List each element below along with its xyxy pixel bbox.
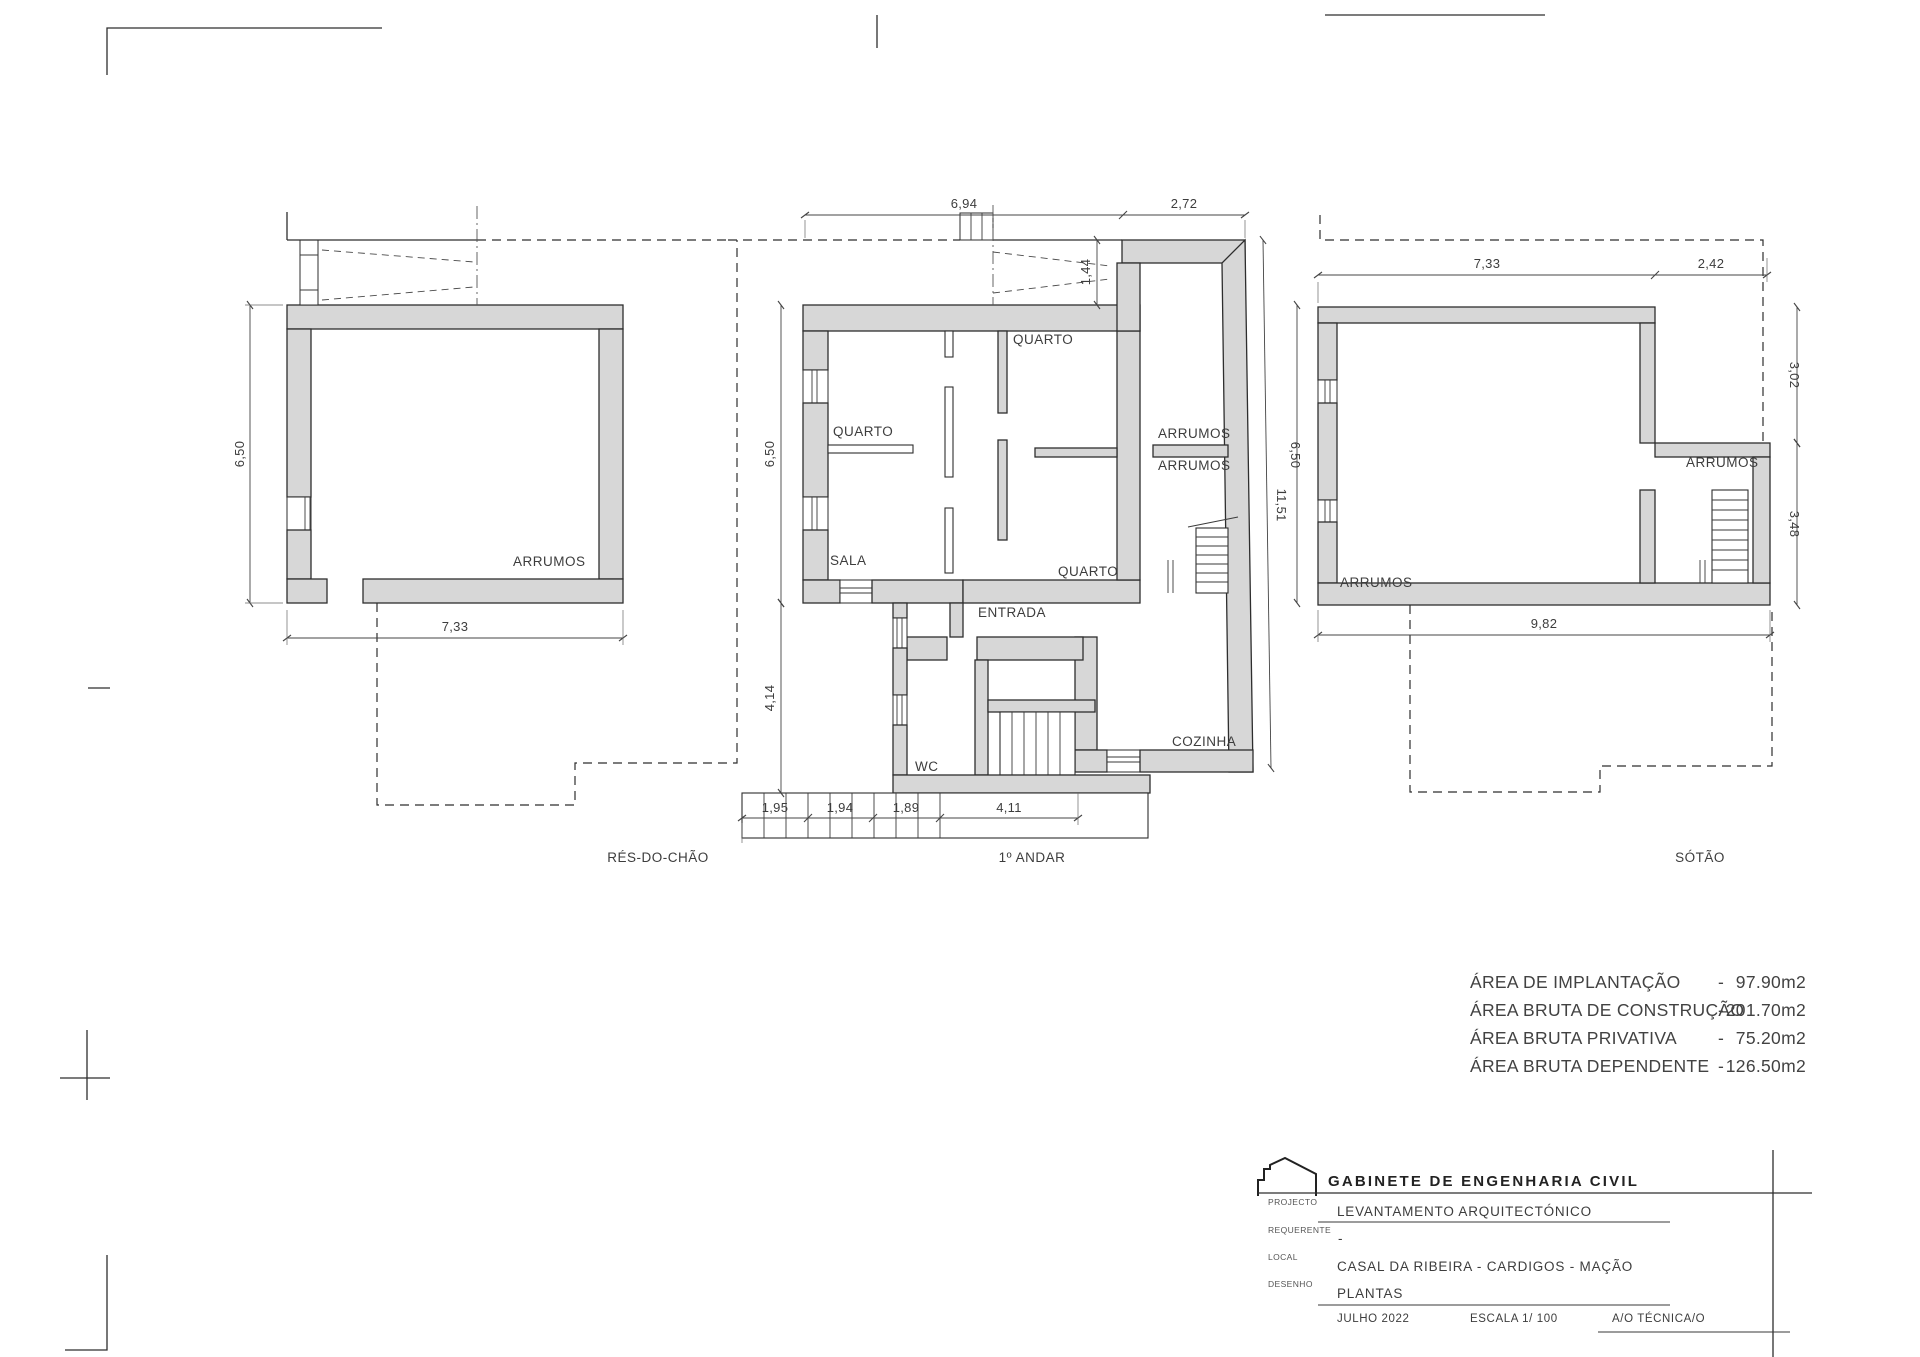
floor-label-ground: RÉS-DO-CHÃO [607,850,709,865]
area-row-value: 126.50m2 [1726,1056,1806,1076]
field-value-requerente: - [1338,1231,1343,1246]
drawing-sheet: 6,50 7,33 ARRUMOS RÉS-DO-CHÃO [0,0,1920,1357]
room-label-arrumos-attic-right: ARRUMOS [1686,455,1759,470]
sheet-corner-marks [60,15,1545,1350]
dim-first-right-total: 11,51 [1274,488,1290,521]
titleblock-technician: A/O TÉCNICA/O [1612,1312,1705,1325]
area-row-label: ÁREA BRUTA DEPENDENTE [1470,1056,1709,1076]
plan-attic: 7,33 2,42 3,02 3,48 9,82 ARRUMOS ARRUMOS… [1318,215,1802,865]
dim-attic-top-main: 7,33 [1474,256,1501,271]
room-label-cozinha: COZINHA [1172,734,1236,749]
area-row-value: 201.70m2 [1726,1000,1806,1020]
area-row-label: ÁREA DE IMPLANTAÇÃO [1470,971,1681,992]
dim-first-bottom-2: 1,94 [827,800,854,815]
dim-first-left-lower: 4,14 [762,685,777,712]
room-label-arrumos-ground: ARRUMOS [513,554,586,569]
area-row-value: 75.20m2 [1736,1028,1806,1048]
room-label-arrumos-lower: ARRUMOS [1158,458,1231,473]
field-value-local: CASAL DA RIBEIRA - CARDIGOS - MAÇÃO [1337,1259,1633,1274]
plan-first-floor: 6,94 2,72 1,44 6,50 4,14 11,51 6,50 1,95… [728,196,1303,865]
field-label-local: LOCAL [1268,1252,1298,1262]
field-value-projecto: LEVANTAMENTO ARQUITECTÓNICO [1337,1204,1592,1219]
field-label-requerente: REQUERENTE [1268,1225,1331,1235]
room-label-quarto-top-left: QUARTO [833,424,893,439]
dim-first-bottom-3: 1,89 [893,800,920,815]
field-value-desenho: PLANTAS [1337,1286,1403,1301]
area-row-dash: - [1718,1000,1724,1020]
dim-ground-height: 6,50 [232,441,247,468]
area-row-label: ÁREA BRUTA PRIVATIVA [1470,1028,1677,1048]
floor-plan-drawing: 6,50 7,33 ARRUMOS RÉS-DO-CHÃO [0,0,1920,1357]
room-label-sala: SALA [830,553,867,568]
room-label-quarto-top-right: QUARTO [1013,332,1073,347]
room-label-entrada: ENTRADA [978,605,1046,620]
dim-first-top-wing: 2,72 [1171,196,1198,211]
area-summary: ÁREA DE IMPLANTAÇÃO - 97.90m2 ÁREA BRUTA… [1470,971,1806,1076]
room-label-arrumos-upper: ARRUMOS [1158,426,1231,441]
dim-first-top-main: 6,94 [951,196,978,211]
dim-ground-width: 7,33 [442,619,469,634]
room-label-wc: WC [915,759,939,774]
area-row-dash: - [1718,1028,1724,1048]
company-name: GABINETE DE ENGENHARIA CIVIL [1328,1173,1639,1190]
attic-stairs [1712,490,1748,583]
dim-attic-right-upper: 3,02 [1787,362,1802,389]
dim-first-left-upper: 6,50 [762,441,777,468]
dim-attic-right-lower: 3,48 [1787,511,1802,538]
area-row-label: ÁREA BRUTA DE CONSTRUÇÃO [1470,999,1744,1020]
room-label-arrumos-attic-main: ARRUMOS [1340,575,1413,590]
titleblock-scale: ESCALA 1/ 100 [1470,1313,1558,1325]
chimney-first [960,213,993,240]
dim-first-right-main: 6,50 [1288,442,1303,469]
dim-attic-top-right: 2,42 [1698,256,1725,271]
dim-first-chimney: 1,44 [1078,259,1093,286]
area-row-value: 97.90m2 [1736,972,1806,992]
area-row-dash: - [1718,972,1724,992]
field-label-projecto: PROJECTO [1268,1197,1317,1207]
title-block: GABINETE DE ENGENHARIA CIVIL PROJECTO LE… [1258,1150,1812,1357]
chimney-ground [300,240,318,305]
interior-stairs [1000,712,1075,775]
stairs-to-attic [1196,528,1228,593]
field-label-desenho: DESENHO [1268,1279,1313,1289]
dim-first-bottom-1: 1,95 [762,800,789,815]
dim-attic-bottom: 9,82 [1531,616,1558,631]
dim-first-bottom-4: 4,11 [996,800,1022,815]
area-row-dash: - [1718,1056,1724,1076]
external-stairs [742,793,1148,838]
titleblock-date: JULHO 2022 [1337,1313,1409,1325]
plan-ground-floor: 6,50 7,33 ARRUMOS RÉS-DO-CHÃO [232,206,737,865]
floor-label-attic: SÓTÃO [1675,850,1725,865]
floor-label-first: 1º ANDAR [999,850,1066,865]
house-logo-icon [1258,1158,1316,1196]
room-label-quarto-bottom-right: QUARTO [1058,564,1118,579]
